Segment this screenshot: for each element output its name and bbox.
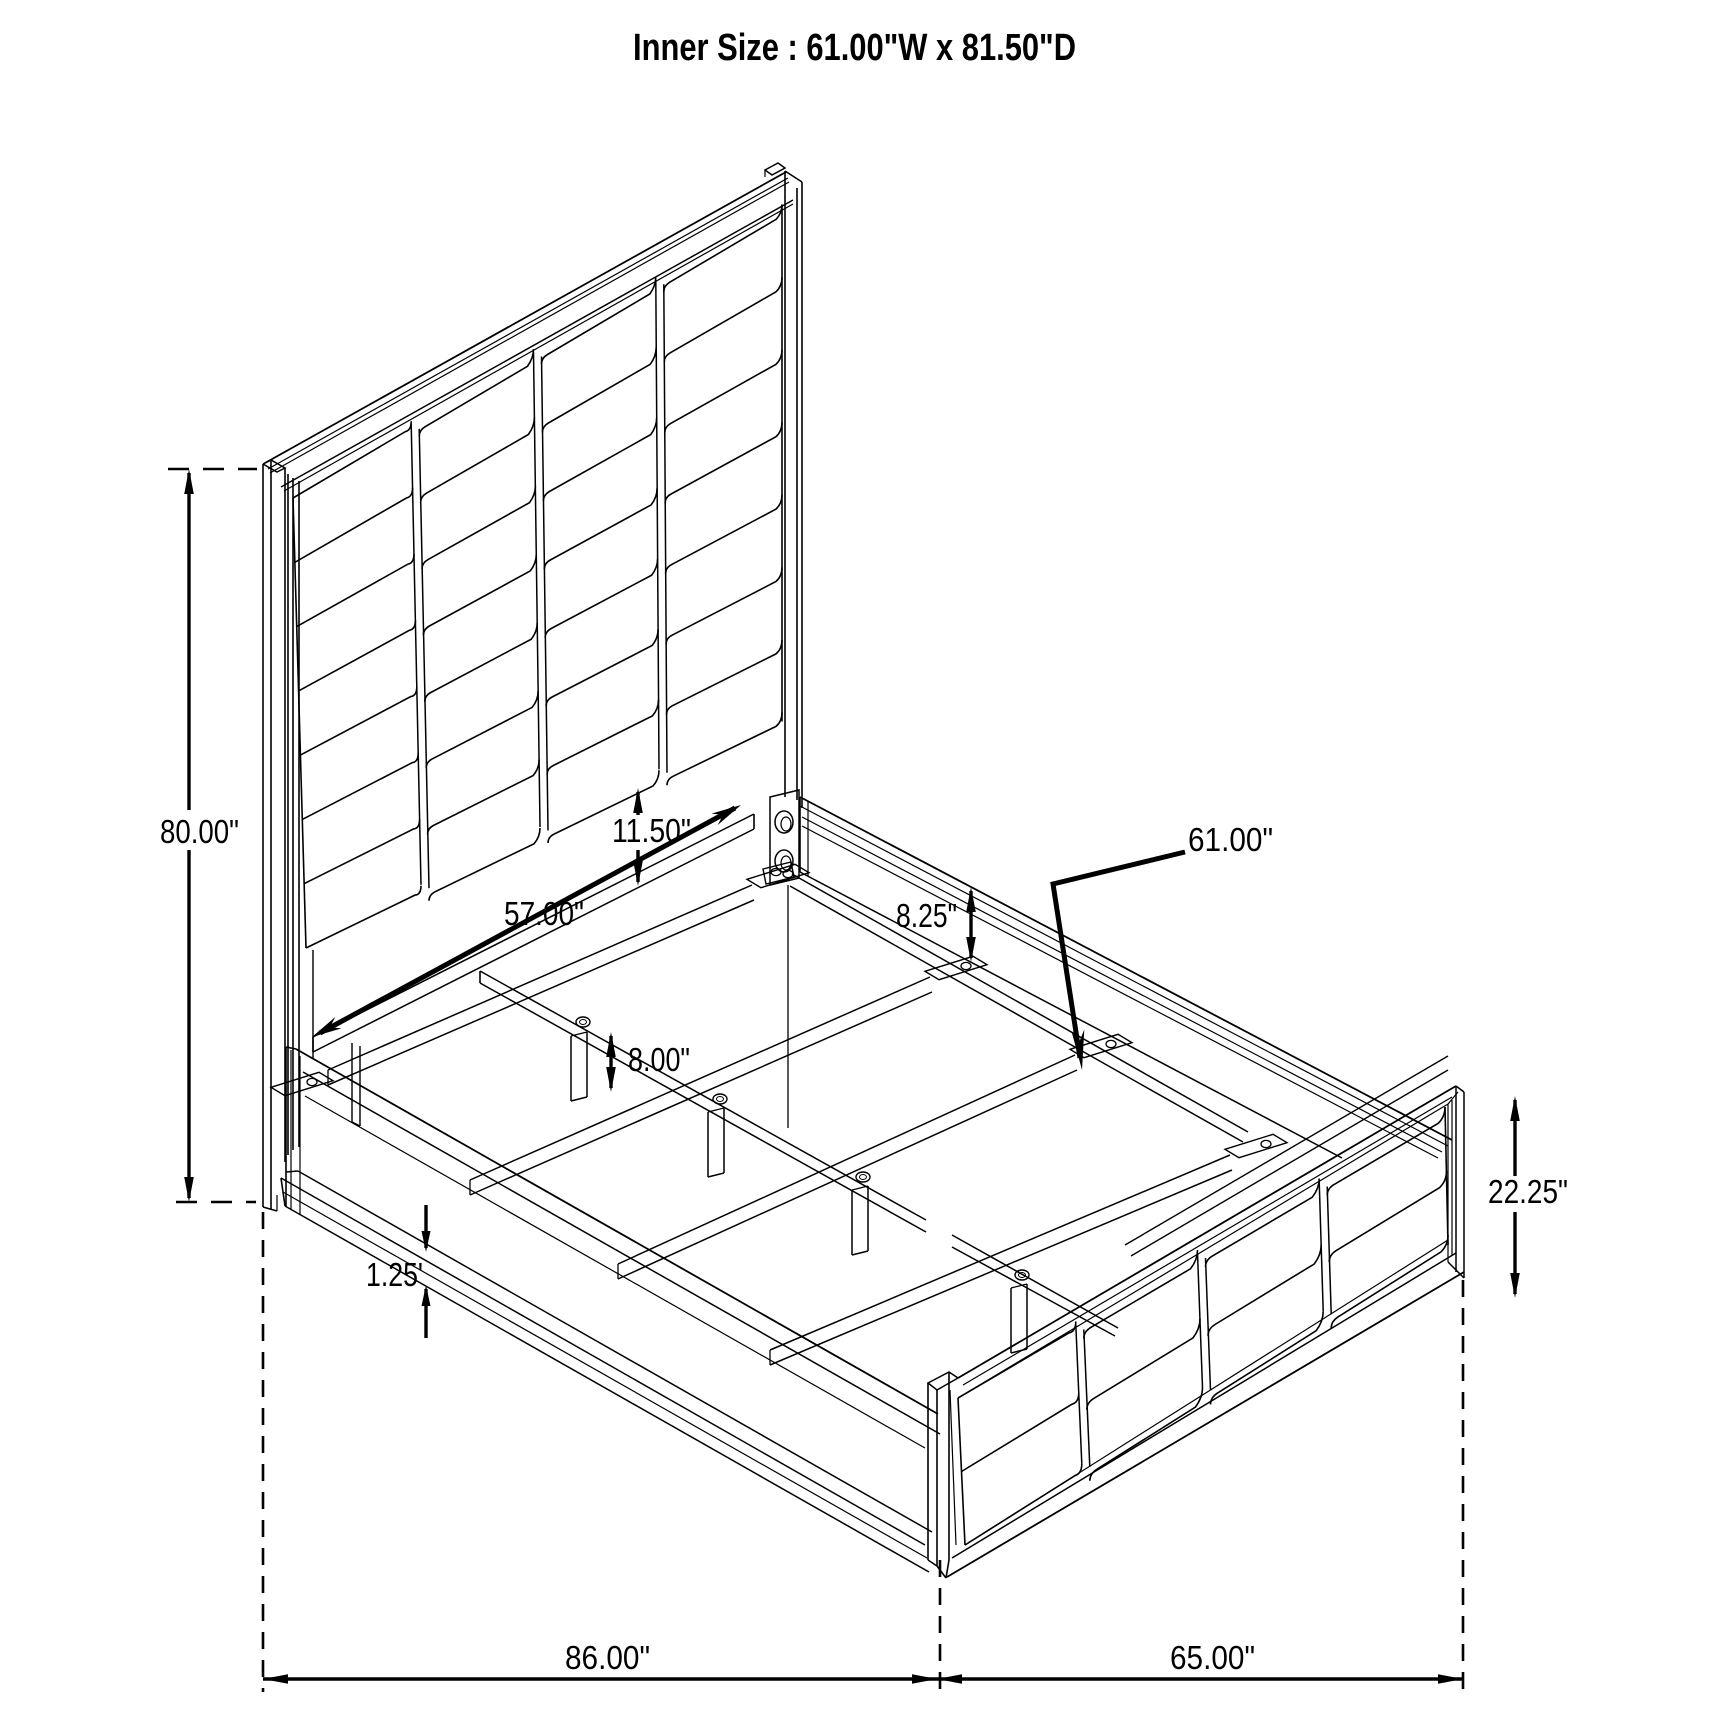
svg-text:1.25': 1.25' <box>366 1256 423 1293</box>
svg-text:8.25": 8.25" <box>896 897 957 934</box>
svg-text:61.00": 61.00" <box>1188 821 1273 858</box>
svg-text:57.00": 57.00" <box>504 895 584 932</box>
svg-text:8.00": 8.00" <box>628 1041 690 1078</box>
svg-text:86.00": 86.00" <box>565 1639 650 1676</box>
svg-text:22.25": 22.25" <box>1488 1173 1568 1210</box>
svg-text:80.00": 80.00" <box>160 813 239 850</box>
svg-text:65.00": 65.00" <box>1170 1639 1255 1676</box>
svg-text:Inner Size : 61.00"W x 81.50"D: Inner Size : 61.00"W x 81.50"D <box>633 27 1076 69</box>
svg-text:11.50": 11.50" <box>612 812 691 849</box>
